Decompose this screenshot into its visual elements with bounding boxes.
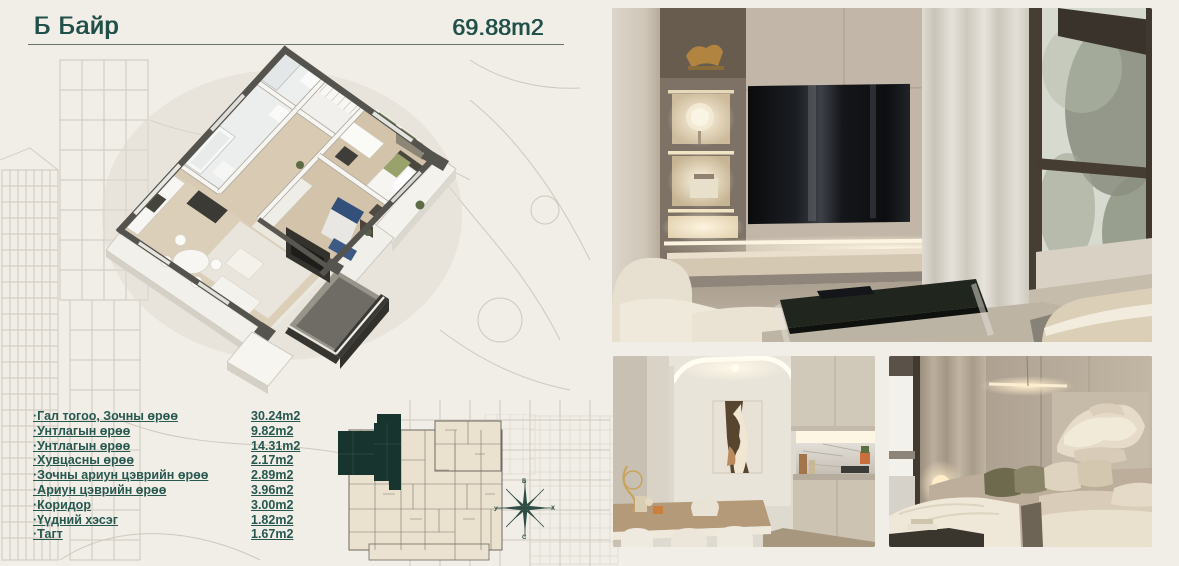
- svg-text:С: С: [522, 535, 527, 539]
- svg-text:Х: Х: [551, 506, 555, 512]
- svg-text:Б: Б: [522, 479, 527, 485]
- svg-text:У: У: [494, 507, 498, 513]
